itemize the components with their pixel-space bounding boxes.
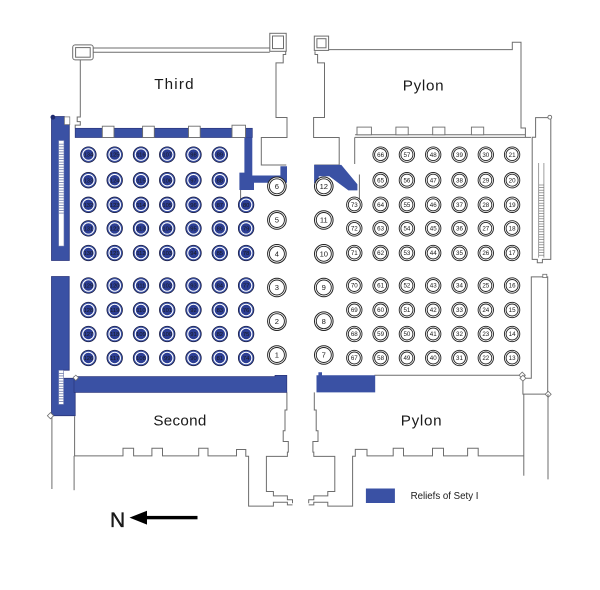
svg-text:33: 33: [456, 307, 463, 314]
svg-text:48: 48: [430, 152, 437, 159]
svg-text:13: 13: [509, 355, 516, 362]
svg-text:85: 85: [217, 251, 223, 257]
svg-text:40: 40: [430, 355, 437, 362]
svg-text:9: 9: [322, 283, 326, 292]
svg-text:115: 115: [136, 178, 145, 184]
svg-text:37: 37: [456, 202, 463, 209]
svg-text:123: 123: [110, 203, 120, 209]
svg-text:34: 34: [456, 283, 463, 290]
svg-text:109: 109: [136, 332, 146, 338]
svg-text:134: 134: [84, 153, 94, 159]
svg-text:63: 63: [377, 226, 384, 233]
svg-text:28: 28: [482, 202, 489, 209]
svg-text:49: 49: [403, 355, 410, 362]
svg-text:56: 56: [403, 177, 410, 184]
svg-text:128: 128: [84, 308, 94, 314]
svg-text:86: 86: [217, 227, 223, 233]
svg-text:83: 83: [217, 308, 223, 314]
svg-text:122: 122: [110, 227, 120, 233]
svg-text:10: 10: [320, 250, 328, 259]
svg-text:30: 30: [482, 152, 489, 159]
svg-text:129: 129: [84, 284, 94, 290]
svg-text:106: 106: [162, 178, 172, 184]
svg-text:87: 87: [217, 203, 223, 209]
svg-text:90: 90: [190, 356, 196, 362]
svg-text:41: 41: [430, 331, 437, 338]
svg-text:74: 74: [243, 356, 250, 362]
svg-text:N: N: [110, 509, 125, 532]
svg-text:23: 23: [482, 331, 489, 338]
svg-text:133: 133: [84, 178, 94, 184]
svg-text:43: 43: [430, 283, 437, 290]
svg-text:4: 4: [275, 250, 279, 259]
svg-text:69: 69: [351, 307, 358, 314]
svg-text:50: 50: [403, 331, 410, 338]
svg-text:112: 112: [136, 251, 145, 257]
svg-text:19: 19: [509, 202, 516, 209]
svg-text:116: 116: [136, 153, 145, 159]
svg-text:78: 78: [243, 251, 249, 257]
svg-text:8: 8: [322, 317, 326, 326]
svg-text:101: 101: [162, 308, 172, 314]
svg-text:53: 53: [403, 250, 410, 257]
svg-text:20: 20: [509, 177, 516, 184]
svg-text:72: 72: [351, 226, 358, 233]
svg-text:127: 127: [84, 332, 94, 338]
svg-text:64: 64: [377, 202, 384, 209]
svg-text:11: 11: [320, 216, 328, 225]
svg-text:75: 75: [243, 332, 249, 338]
svg-text:132: 132: [84, 203, 94, 209]
svg-text:91: 91: [190, 332, 196, 338]
svg-text:1: 1: [275, 351, 279, 360]
svg-text:96: 96: [190, 203, 196, 209]
svg-text:47: 47: [430, 177, 437, 184]
svg-text:22: 22: [482, 355, 489, 362]
svg-text:102: 102: [162, 284, 172, 290]
svg-text:95: 95: [190, 227, 196, 233]
svg-text:100: 100: [162, 332, 172, 338]
svg-text:105: 105: [162, 203, 172, 209]
svg-text:Second: Second: [153, 412, 206, 429]
svg-text:121: 121: [110, 251, 120, 257]
svg-text:120: 120: [110, 284, 120, 290]
svg-text:82: 82: [217, 332, 223, 338]
svg-text:131: 131: [84, 227, 94, 233]
svg-text:52: 52: [403, 283, 410, 290]
svg-text:57: 57: [403, 152, 410, 159]
svg-text:97: 97: [190, 178, 196, 184]
svg-text:59: 59: [377, 331, 384, 338]
svg-text:117: 117: [110, 356, 119, 362]
svg-text:36: 36: [456, 226, 463, 233]
svg-text:55: 55: [403, 202, 410, 209]
svg-text:24: 24: [482, 307, 489, 314]
svg-text:2: 2: [275, 317, 279, 326]
svg-text:88: 88: [217, 178, 223, 184]
svg-text:Pylon: Pylon: [401, 413, 443, 430]
svg-text:118: 118: [110, 332, 119, 338]
svg-text:27: 27: [482, 226, 489, 233]
svg-text:104: 104: [162, 227, 172, 233]
svg-text:94: 94: [190, 251, 197, 257]
svg-text:77: 77: [243, 284, 249, 290]
svg-text:15: 15: [509, 307, 516, 314]
svg-text:44: 44: [430, 250, 437, 257]
svg-text:98: 98: [190, 153, 196, 159]
svg-text:21: 21: [509, 152, 516, 159]
svg-text:84: 84: [217, 284, 224, 290]
svg-text:58: 58: [377, 355, 384, 362]
svg-text:111: 111: [137, 284, 146, 290]
svg-text:35: 35: [456, 250, 463, 257]
svg-text:Third: Third: [154, 76, 195, 93]
svg-text:114: 114: [136, 203, 146, 209]
svg-text:17: 17: [509, 250, 516, 257]
svg-text:62: 62: [377, 250, 384, 257]
svg-text:60: 60: [377, 307, 384, 314]
svg-text:68: 68: [351, 331, 358, 338]
svg-text:3: 3: [275, 283, 279, 292]
svg-text:93: 93: [190, 284, 196, 290]
svg-text:113: 113: [136, 227, 145, 233]
svg-text:Pylon: Pylon: [403, 78, 445, 95]
svg-text:66: 66: [377, 152, 384, 159]
svg-text:54: 54: [403, 226, 410, 233]
svg-text:7: 7: [322, 351, 326, 360]
svg-text:29: 29: [482, 177, 489, 184]
svg-text:80: 80: [243, 203, 249, 209]
svg-text:79: 79: [243, 227, 249, 233]
svg-text:70: 70: [351, 283, 358, 290]
svg-text:6: 6: [275, 182, 279, 191]
svg-text:81: 81: [217, 356, 223, 362]
svg-text:124: 124: [110, 178, 120, 184]
svg-text:92: 92: [190, 308, 196, 314]
svg-text:Reliefs of Sety I: Reliefs of Sety I: [411, 491, 479, 502]
svg-text:51: 51: [403, 307, 410, 314]
svg-text:125: 125: [110, 153, 120, 159]
svg-text:26: 26: [482, 250, 489, 257]
svg-text:42: 42: [430, 307, 437, 314]
svg-text:126: 126: [84, 356, 94, 362]
svg-text:71: 71: [351, 250, 358, 257]
svg-text:130: 130: [84, 251, 94, 257]
svg-text:14: 14: [509, 331, 516, 338]
svg-text:39: 39: [456, 152, 463, 159]
svg-text:46: 46: [430, 202, 437, 209]
svg-text:12: 12: [320, 182, 328, 191]
svg-text:67: 67: [351, 355, 358, 362]
svg-text:103: 103: [162, 251, 172, 257]
svg-text:45: 45: [430, 226, 437, 233]
svg-text:65: 65: [377, 177, 384, 184]
svg-text:76: 76: [243, 308, 249, 314]
svg-text:119: 119: [110, 308, 119, 314]
svg-text:18: 18: [509, 226, 516, 233]
svg-text:32: 32: [456, 331, 463, 338]
svg-text:73: 73: [351, 202, 358, 209]
svg-text:89: 89: [217, 153, 223, 159]
svg-text:107: 107: [162, 153, 172, 159]
svg-text:25: 25: [482, 283, 489, 290]
svg-text:61: 61: [377, 283, 384, 290]
svg-text:16: 16: [509, 283, 516, 290]
svg-text:5: 5: [275, 216, 279, 225]
svg-text:31: 31: [456, 355, 463, 362]
svg-text:38: 38: [456, 177, 463, 184]
svg-text:108: 108: [136, 356, 146, 362]
svg-text:99: 99: [164, 356, 170, 362]
svg-text:110: 110: [136, 308, 145, 314]
